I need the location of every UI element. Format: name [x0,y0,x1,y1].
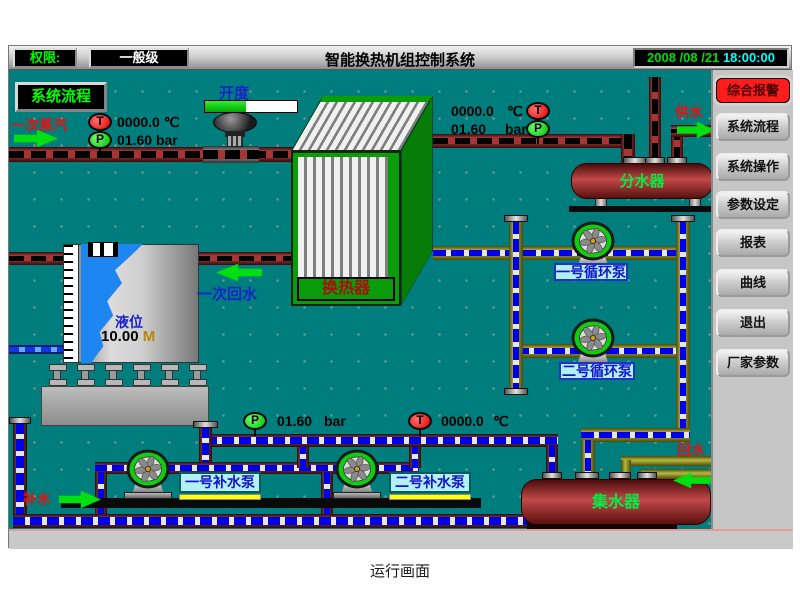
tank-support [165,364,173,386]
flow-page-button[interactable]: 系统流程 [15,82,107,112]
sidebar-button-operation[interactable]: 系统操作 [716,153,790,181]
time-text: 18:00:00 [723,50,775,65]
heat-exchanger-plates [298,157,388,281]
supply-pressure-readout: 01.60 [451,121,486,137]
hmi-window: 权限: 一般级 智能换热机组控制系统 2008 /08 /21 18:00:00 [8,45,792,548]
sidebar-button-report[interactable]: 报表 [716,229,790,257]
date-text: 2008 /08 /21 [647,50,719,65]
flange [542,472,562,479]
makeup-pump-1-label: 一号补水泵 [179,472,261,493]
supply-label: 供水 [675,102,703,122]
flange [609,472,631,479]
steam-temp-readout: 0000.0 ℃ [117,114,179,131]
tank-top-fitting [88,242,118,257]
collector-label: 集水器 [592,494,640,511]
flow-arrow-left [216,263,262,282]
makeup-bottom-pipe [13,514,558,528]
sidebar-button-exit[interactable]: 退出 [716,309,790,337]
pressure-indicator: P [526,120,550,138]
pump-base [124,492,172,499]
distributor-top-pipe [649,77,661,163]
sidebar-button-factory[interactable]: 厂家参数 [716,349,790,377]
collector-feed-drop [581,440,595,476]
flange [575,472,599,479]
sidebar-button-settings[interactable]: 参数设定 [716,191,790,219]
tank-support [109,364,117,386]
makeup-pump-2[interactable] [335,449,379,489]
primary-return-label: 一次回水 [197,283,257,304]
pressure-indicator: P [243,412,267,430]
flange [637,472,657,479]
return-temp-readout: 0000.0 [441,413,484,429]
process-diagram: 换热器 分水器 集水器 液位 10.00 M 开度 [9,70,793,529]
circulation-pump-1[interactable] [571,221,615,261]
tank-foundation [41,386,209,426]
alarm-button[interactable]: 综合报警 [716,78,790,103]
window-bottom-strip [9,529,793,549]
page: 权限: 一般级 智能换热机组控制系统 2008 /08 /21 18:00:00 [0,0,800,600]
collector-vessel[interactable]: 集水器 [521,479,711,525]
sidebar-button-flow[interactable]: 系统流程 [716,113,790,141]
collector-feed-pipe [581,428,690,442]
circulation-pump-2[interactable] [571,318,615,358]
tank-lower-pipe [9,345,63,354]
tank-level-unit: M [143,328,156,345]
tank-support [193,364,201,386]
header-stub [199,426,212,462]
circulation-pump-1-label: 一号循环泵 [554,263,628,281]
heat-exchanger-label: 换热器 [297,277,395,301]
makeup-pressure-unit: bar [324,413,346,429]
temperature-indicator: T [526,102,550,120]
return-temp-unit: ℃ [493,413,509,430]
valve-pipe-section [203,146,259,163]
header-stub-cap [193,421,218,428]
steam-valve[interactable] [213,112,257,133]
sidebar: 综合报警 系统流程 系统操作 参数设定 报表 曲线 退出 厂家参数 [711,70,793,529]
makeup-riser-1 [95,472,107,518]
image-caption: 运行画面 [0,560,800,581]
distributor-base [569,206,715,212]
steam-pressure-readout: 01.60 bar [117,132,178,148]
primary-return-pipe [195,252,293,265]
valve-stem [227,135,243,147]
sidebar-button-curve[interactable]: 曲线 [716,269,790,297]
heat-exchanger[interactable]: 换热器 [291,151,401,306]
label-underline [179,494,261,500]
valve-opening-fill [205,101,246,112]
circulation-pump-2-label: 二号循环泵 [559,362,635,380]
titlebar: 权限: 一般级 智能换热机组控制系统 2008 /08 /21 18:00:00 [9,46,791,70]
level-gauge-scale [63,244,79,363]
tank-support [81,364,89,386]
supply-pressure-unit: bar [505,121,527,137]
tank-inlet-pipe [9,252,63,265]
makeup-pressure-readout: 01.60 [277,413,312,429]
valve-opening-bar[interactable] [204,100,298,113]
tank-support [137,364,145,386]
label-underline [389,494,471,500]
distributor-label: 分水器 [619,173,664,190]
makeup-pump-2-label: 二号补水泵 [389,472,471,493]
page-title: 智能换热机组控制系统 [325,49,475,70]
riser-cap [9,417,31,424]
supply-temp-readout: 0000.0 [451,103,494,119]
circulation-right-riser [676,221,690,435]
temperature-indicator: T [88,113,112,131]
circulation-row1-pipe [433,246,690,260]
makeup-pump-1[interactable] [126,449,170,489]
supply-temp-unit: ℃ [507,103,523,120]
makeup-label: 补水 [23,489,51,509]
circulation-left-riser [509,221,523,392]
tank-support [53,364,61,386]
distributor-vessel[interactable]: 分水器 [571,163,713,199]
permission-level-badge: 一般级 [89,48,189,68]
permission-label: 权限: [13,48,77,68]
tank-level-value: 10.00 M [101,328,155,345]
datetime-panel: 2008 /08 /21 18:00:00 [633,48,789,68]
return-label: 回水 [677,440,705,460]
riser-cap [671,215,695,222]
makeup-header-pipe [205,434,558,447]
makeup-riser-2 [321,472,333,518]
riser-cap [504,388,528,395]
pump-base [333,492,381,499]
pressure-indicator: P [88,131,112,149]
riser-cap [504,215,528,222]
temperature-indicator: T [408,412,432,430]
